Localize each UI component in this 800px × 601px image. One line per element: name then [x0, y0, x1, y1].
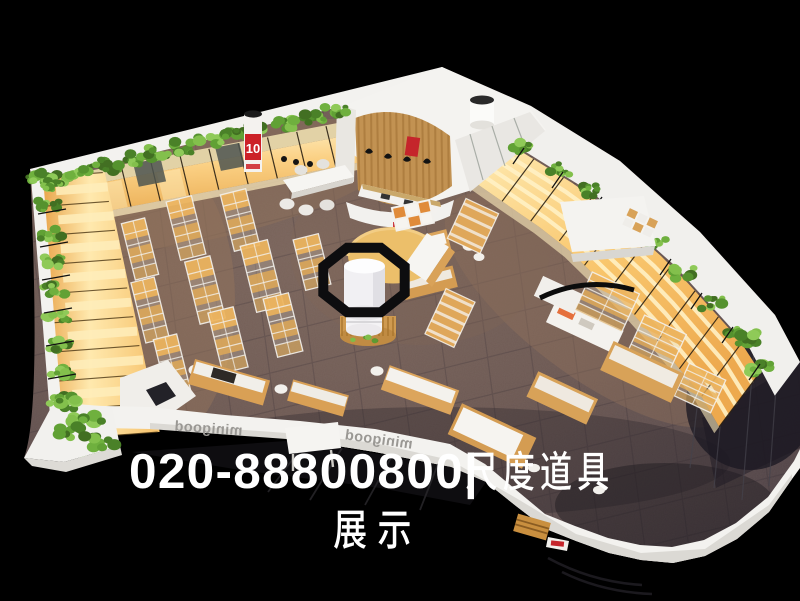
svg-text:10: 10: [246, 141, 260, 156]
svg-text:020-88800800|: 020-88800800|: [129, 444, 479, 500]
